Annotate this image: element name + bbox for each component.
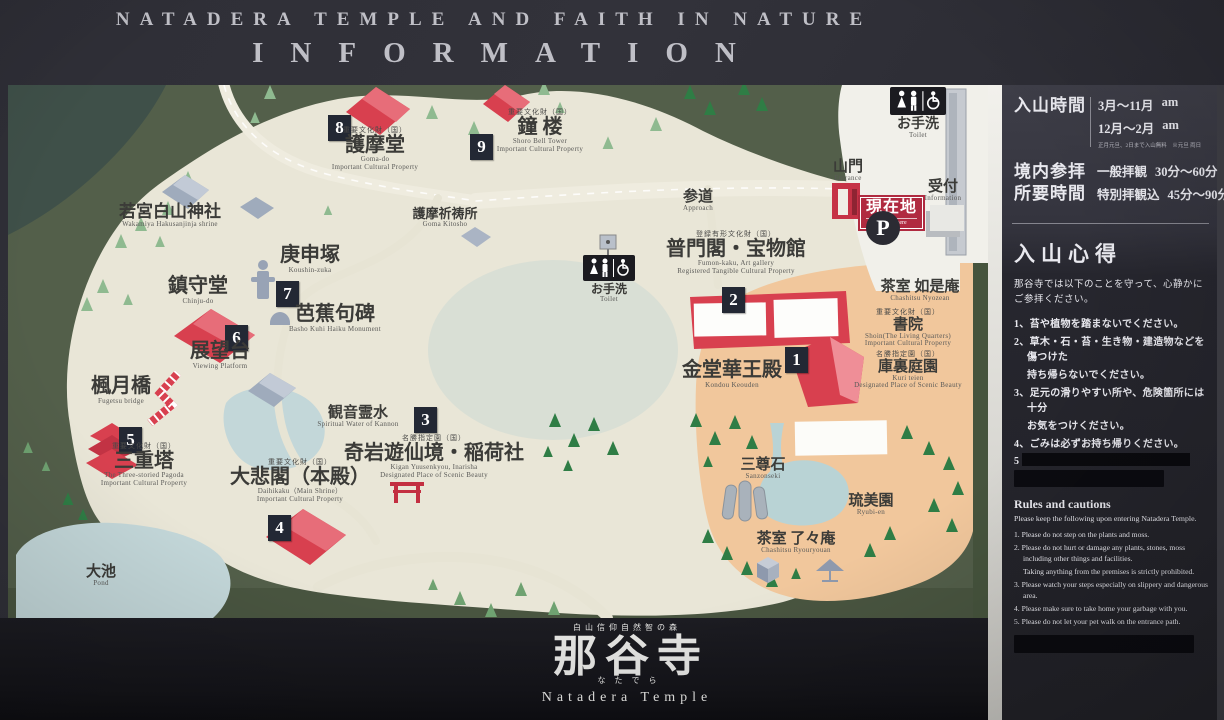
map-label-kannonreisui: 観音霊水 Spiritual Water of Kannon — [317, 405, 398, 429]
label-en2: Important Cultural Property — [101, 480, 187, 488]
label-jp: 展望台 — [190, 341, 250, 363]
label-jp: 庚申塚 — [280, 245, 340, 267]
entry-hours-values: 3月〜11月am 12月〜2月am 正月元旦、2日まで入山無料 ※元旦 両日 — [1098, 95, 1213, 149]
map-label-daihikaku: 重要文化財（国） 大悲閣（本殿） Daihikaku（Main Shrine） … — [230, 459, 370, 503]
hours-note: 正月元旦、2日まで入山無料 ※元旦 両日 — [1098, 141, 1213, 149]
hours-time: am — [1162, 95, 1179, 114]
label-en2: Important Cultural Property — [332, 164, 418, 172]
label-jp: 鐘 楼 — [497, 117, 583, 139]
label-jp: お手洗 — [890, 117, 946, 132]
precepts-intro-2: ご参拝ください。 — [1014, 291, 1211, 305]
label-jp: 茶室 了々庵 — [757, 531, 836, 547]
parking-icon: P — [866, 211, 900, 245]
label-en: Basho Kuhi Haiku Monument — [289, 326, 381, 334]
info-sidebar: 入山時間 3月〜11月am 12月〜2月am 正月元旦、2日まで入山無料 ※元旦… — [1002, 85, 1217, 720]
label-en: Chinju-do — [168, 298, 228, 306]
temple-logo: 白山信仰自然智の森 那谷寺 なたでら Natadera Temple — [542, 622, 713, 706]
duration-type: 特別拝観込 — [1097, 184, 1160, 203]
label-en: Fugetsu bridge — [91, 398, 151, 406]
label-en: Information — [925, 195, 962, 203]
label-jp: 護摩祈祷所 — [412, 207, 477, 221]
label-en: Toilet — [583, 296, 635, 304]
precepts-title: 入山心得 — [1014, 238, 1217, 268]
label-en: Chashitsu Nyozean — [881, 295, 960, 303]
rules-title: Rules and cautions — [1014, 497, 1217, 512]
visit-duration-values: 一般拝観30分〜60分 特別拝観込45分〜90分 — [1097, 161, 1224, 207]
precept-item-cont: お気をつけください。 — [1014, 417, 1213, 432]
map-label-bashokuhi: 芭蕉句碑 Basho Kuhi Haiku Monument — [289, 304, 381, 333]
map-label-toilet-top: お手洗 Toilet — [890, 87, 946, 140]
temple-name-en: Natadera Temple — [542, 690, 713, 706]
label-jp: 観音霊水 — [317, 405, 398, 421]
label-jp: 大悲閣（本殿） — [230, 467, 370, 489]
label-en: Chashitsu Ryouryouan — [757, 547, 836, 555]
label-en: Toilet — [890, 132, 946, 140]
sanzonseki-stones — [722, 481, 768, 521]
label-en: Ryubi-en — [848, 509, 893, 517]
label-jp: 参道 — [683, 189, 713, 205]
label-jp: 若宮白山神社 — [119, 203, 221, 221]
label-en: Goma Kitosho — [412, 221, 477, 229]
map-label-sando: 参道 Approach — [683, 189, 713, 213]
map-label-ryoryoan: 茶室 了々庵 Chashitsu Ryouryouan — [757, 531, 836, 555]
label-jp: 琉美園 — [848, 493, 893, 509]
toilet-icon — [583, 255, 635, 281]
hours-period: 12月〜2月 — [1098, 118, 1154, 137]
map-label-nyozean: 茶室 如是庵 Chashitsu Nyozean — [881, 279, 960, 303]
map-label-kuriteien: 名勝指定園（国） 庫裏庭園 Kuri teien Designated Plac… — [854, 351, 962, 390]
label-en: Kondou Keouden — [682, 382, 782, 390]
label-jp: 茶室 如是庵 — [881, 279, 960, 295]
blank-patch — [795, 420, 888, 456]
label-jp: 三重塔 — [101, 451, 187, 473]
reception-building — [926, 205, 964, 237]
label-en: Entrance — [833, 175, 863, 183]
marker-4: 4 — [268, 515, 291, 541]
precept-item-number: 5 — [1014, 456, 1019, 467]
label-jp: 鎮守堂 — [168, 276, 228, 298]
board-subtitle: INFORMATION — [0, 37, 988, 70]
label-en: Pond — [86, 580, 116, 588]
rule-item: 1. Please do not step on the plants and … — [1014, 529, 1213, 540]
label-en2: Important Cultural Property — [865, 340, 951, 348]
map-label-gomakitosho: 護摩祈祷所 Goma Kitosho — [412, 207, 477, 229]
map-label-sanmon: 山門 Entrance — [833, 159, 863, 183]
precept-item-redacted: 5 — [1014, 453, 1213, 467]
map-label-ryubien: 琉美園 Ryubi-en — [848, 493, 893, 517]
footer-band: 白山信仰自然智の森 那谷寺 なたでら Natadera Temple — [0, 618, 988, 720]
map-label-shoro: 重要文化財（国） 鐘 楼 Shoro Bell Tower Important … — [497, 109, 583, 153]
precept-item: 2、草木・石・苔・生き物・建造物などを傷つけた — [1014, 333, 1213, 363]
label-en: Viewing Platform — [190, 363, 250, 371]
map-label-fugetsubashi: 楓月橋 Fugetsu bridge — [91, 376, 151, 405]
label-jp: 普門閣・宝物館 — [666, 239, 806, 261]
marker-2: 2 — [722, 287, 745, 313]
visit-duration-row: 境内参拝 所要時間 一般拝観30分〜60分 特別拝観込45分〜90分 — [1002, 151, 1217, 209]
precept-item-cont: 持ち帰らないでください。 — [1014, 366, 1213, 381]
label-jp: 山門 — [833, 159, 863, 175]
rule-item: 3. Please watch your steps especially on… — [1014, 579, 1213, 601]
label-en2: Registered Tangible Cultural Property — [666, 268, 806, 276]
label-en: Sanzonseki — [740, 473, 785, 481]
label-jp: 受付 — [925, 179, 962, 195]
redaction-bar — [1014, 635, 1194, 653]
rocky-gorge-area — [428, 260, 678, 440]
label-en: Spiritual Water of Kannon — [317, 421, 398, 429]
label-jp: 護摩堂 — [332, 135, 418, 157]
label-jp: 三尊石 — [740, 457, 785, 473]
precept-item: 4、ごみは必ずお持ち帰りください。 — [1014, 435, 1213, 450]
scenic-beauty-tag: 名勝指定園（国） — [854, 351, 962, 359]
sanmon-gate — [832, 183, 860, 219]
label-jp: 芭蕉句碑 — [289, 304, 381, 326]
duration-time: 30分〜60分 — [1155, 161, 1218, 180]
precept-item: 1、苔や植物を踏まないでください。 — [1014, 315, 1213, 330]
map-label-sanzonseki: 三尊石 Sanzonseki — [740, 457, 785, 481]
duration-type: 一般拝観 — [1097, 161, 1147, 180]
temple-grounds-map: 1 2 3 4 5 6 7 8 9 重要文化財（国） 護摩堂 Goma-do I… — [8, 85, 988, 618]
map-label-shoin: 重要文化財（国） 書院 Shoin(The Living Quarters) I… — [865, 309, 951, 348]
visit-duration-label: 境内参拝 所要時間 — [1014, 161, 1090, 205]
divider — [1090, 97, 1091, 147]
rules-intro: Please keep the following upon entering … — [1014, 514, 1213, 523]
map-label-tenbodai: 展望台 Viewing Platform — [190, 341, 250, 370]
map-label-kondokeoden: 金堂華王殿 Kondou Keouden — [682, 360, 782, 389]
sidebar-divider — [1012, 223, 1209, 224]
visit-duration-label-2: 所要時間 — [1014, 183, 1090, 205]
map-label-sanjunoto: 重要文化財（国） 三重塔 The Three-storied Pagoda Im… — [101, 443, 187, 487]
hours-period: 3月〜11月 — [1098, 95, 1154, 114]
label-en: Approach — [683, 205, 713, 213]
label-jp: 楓月橋 — [91, 376, 151, 398]
board-edge-strip — [988, 85, 1002, 720]
entry-hours-row: 入山時間 3月〜11月am 12月〜2月am 正月元旦、2日まで入山無料 ※元旦… — [1002, 85, 1217, 151]
map-label-chinjudo: 鎮守堂 Chinju-do — [168, 276, 228, 305]
precept-item: 3、足元の滑りやすい所や、危険箇所には十分 — [1014, 384, 1213, 414]
toilet-icon — [890, 87, 946, 115]
visit-duration-label-1: 境内参拝 — [1014, 161, 1090, 183]
hours-time: am — [1162, 118, 1179, 137]
map-label-oike: 大池 Pond — [86, 564, 116, 588]
rule-item: 4. Please make sure to take home your ga… — [1014, 603, 1213, 614]
label-en2: Designated Place of Scenic Beauty — [344, 472, 524, 480]
marker-9: 9 — [470, 134, 493, 160]
precepts-list: 1、苔や植物を踏まないでください。 2、草木・石・苔・生き物・建造物などを傷つけ… — [1002, 315, 1217, 467]
map-label-gomado: 重要文化財（国） 護摩堂 Goma-do Important Cultural … — [332, 127, 418, 171]
rule-item: 5. Please do not let your pet walk on th… — [1014, 616, 1213, 627]
label-en: Wakamiya Hakusanjinja shrine — [119, 221, 221, 229]
rules-list: 1. Please do not step on the plants and … — [1002, 529, 1217, 627]
map-label-toilet-mid: お手洗 Toilet — [583, 255, 635, 304]
map-right-green-strip — [973, 261, 988, 618]
map-label-koushinzuka: 庚申塚 Koushin-zuka — [280, 245, 340, 274]
map-label-wakamiya: 若宮白山神社 Wakamiya Hakusanjinja shrine — [119, 203, 221, 229]
label-en2: Important Cultural Property — [230, 496, 370, 504]
cultural-property-tag: 重要文化財（国） — [865, 309, 951, 317]
redaction-bar — [1022, 453, 1190, 466]
map-label-kiganyusenkyo: 名勝指定園（国） 奇岩遊仙境・稲荷社 Kigan Yuusenkyou, Ina… — [344, 435, 524, 479]
label-jp: 大池 — [86, 564, 116, 580]
label-en2: Important Cultural Property — [497, 146, 583, 154]
marker-3: 3 — [414, 407, 437, 433]
rule-item: 2. Please do not hurt or damage any plan… — [1014, 542, 1213, 564]
label-jp: 書院 — [865, 317, 951, 333]
label-jp: 庫裏庭園 — [854, 359, 962, 375]
label-jp: 金堂華王殿 — [682, 360, 782, 382]
rule-item-cont: Taking anything from the premises is str… — [1014, 566, 1213, 577]
label-en: Koushin-zuka — [280, 267, 340, 275]
label-en2: Designated Place of Scenic Beauty — [854, 382, 962, 390]
redaction-bar — [1014, 470, 1164, 487]
map-label-fumonkaku: 登録有形文化財（国） 普門閣・宝物館 Fumon-kaku, Art galle… — [666, 231, 806, 275]
label-jp: 奇岩遊仙境・稲荷社 — [344, 443, 524, 465]
board-title: NATADERA TEMPLE AND FAITH IN NATURE — [0, 9, 988, 31]
information-board: NATADERA TEMPLE AND FAITH IN NATURE INFO… — [0, 0, 1224, 720]
title-band: NATADERA TEMPLE AND FAITH IN NATURE INFO… — [0, 0, 988, 85]
temple-name: 那谷寺 — [542, 635, 713, 679]
precepts-intro-1: 那谷寺では以下のことを守って、心静かに — [1014, 276, 1211, 290]
map-label-uketsuke: 受付 Information — [925, 179, 962, 203]
duration-time: 45分〜90分 — [1168, 184, 1224, 203]
marker-1: 1 — [785, 347, 808, 373]
entry-hours-label: 入山時間 — [1014, 95, 1090, 117]
